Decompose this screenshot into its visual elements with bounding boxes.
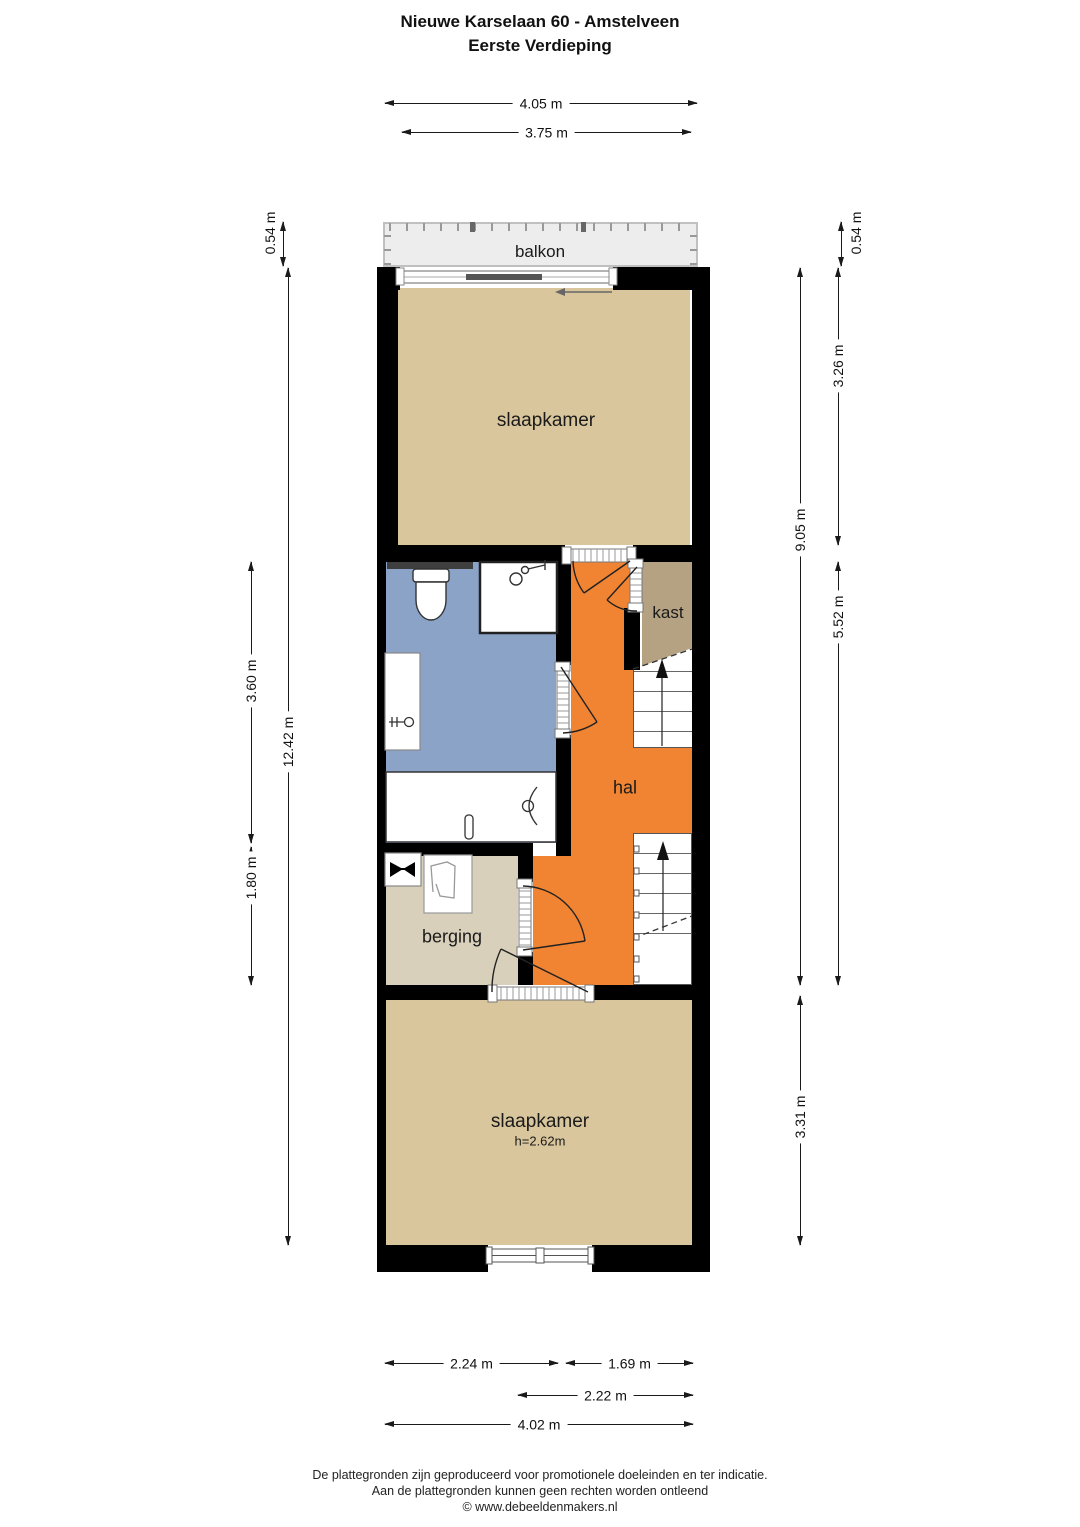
door-swing-berging — [523, 886, 585, 950]
sliding-door — [396, 268, 617, 285]
page-title: Nieuwe Karselaan 60 - Amstelveen — [0, 12, 1080, 32]
copyright-line: © www.debeeldenmakers.nl — [0, 1500, 1080, 1514]
dimension-right-bedroom-top-label: 3.26 m — [830, 340, 846, 393]
window — [486, 1247, 594, 1264]
disclaimer-line-1: De plattegronden zijn geproduceerd voor … — [0, 1468, 1080, 1482]
dimension-left-berging-label: 1.80 m — [243, 852, 259, 905]
door-threshold-berging — [517, 879, 532, 956]
dimension-right-bedroom-bottom-label: 3.31 m — [792, 1091, 808, 1144]
washer-tap-icon — [385, 853, 421, 886]
dimension-bottom-total: 4.02 m — [385, 1424, 693, 1425]
stairs-lower-detail — [634, 841, 692, 982]
dimension-right-total — [800, 268, 801, 985]
door-threshold-bathroom — [555, 662, 570, 738]
dimension-bottom-hall: 2.22 m — [518, 1395, 693, 1396]
door-swing-slaapkamer-top — [573, 561, 630, 593]
page-subtitle: Eerste Verdieping — [0, 36, 1080, 56]
dimension-top-outer: 4.05 m — [385, 103, 697, 104]
washbasin-icon — [385, 653, 420, 750]
dimension-right-balcony-label: 0.54 m — [848, 207, 864, 260]
floorplan-page: Nieuwe Karselaan 60 - Amstelveen Eerste … — [0, 0, 1080, 1527]
dimension-left-balcony-label: 0.54 m — [262, 207, 278, 260]
room-label-hal: hal — [613, 778, 637, 799]
room-label-balkon: balkon — [515, 242, 565, 262]
plan-symbols-layer — [0, 0, 1080, 1527]
dimension-right-balcony — [841, 222, 842, 266]
dimension-right-hall-label: 5.52 m — [830, 591, 846, 644]
slide-direction-arrow — [555, 288, 612, 296]
disclaimer-line-2: Aan de plattegronden kunnen geen rechten… — [0, 1484, 1080, 1498]
dimension-left-bathroom-label: 3.60 m — [243, 655, 259, 708]
room-label-ceiling-height: h=2.62m — [515, 1134, 566, 1149]
dimension-top-inner: 3.75 m — [402, 132, 691, 133]
boiler-icon — [424, 855, 472, 913]
dimension-left-total-label: 12.42 m — [280, 712, 296, 773]
dimension-right-total-label: 9.05 m — [792, 504, 808, 557]
dimension-right-bedroom-top — [838, 268, 839, 545]
dimension-bottom-left: 2.24 m — [385, 1363, 558, 1364]
room-label-slaapkamer-bottom: slaapkamer — [491, 1111, 589, 1133]
room-label-kast: kast — [652, 603, 683, 623]
room-label-berging: berging — [422, 927, 482, 948]
dimension-bottom-right: 1.69 m — [566, 1363, 693, 1364]
stairs-up-arrow — [656, 659, 668, 746]
toilet-icon — [413, 569, 449, 620]
dimension-left-balcony — [283, 222, 284, 266]
shower-icon — [480, 560, 557, 633]
room-label-slaapkamer-top: slaapkamer — [497, 410, 595, 432]
door-threshold-kast — [628, 559, 643, 612]
bathtub-icon — [386, 772, 556, 842]
door-swing-slaapkamer-bottom — [492, 949, 588, 992]
